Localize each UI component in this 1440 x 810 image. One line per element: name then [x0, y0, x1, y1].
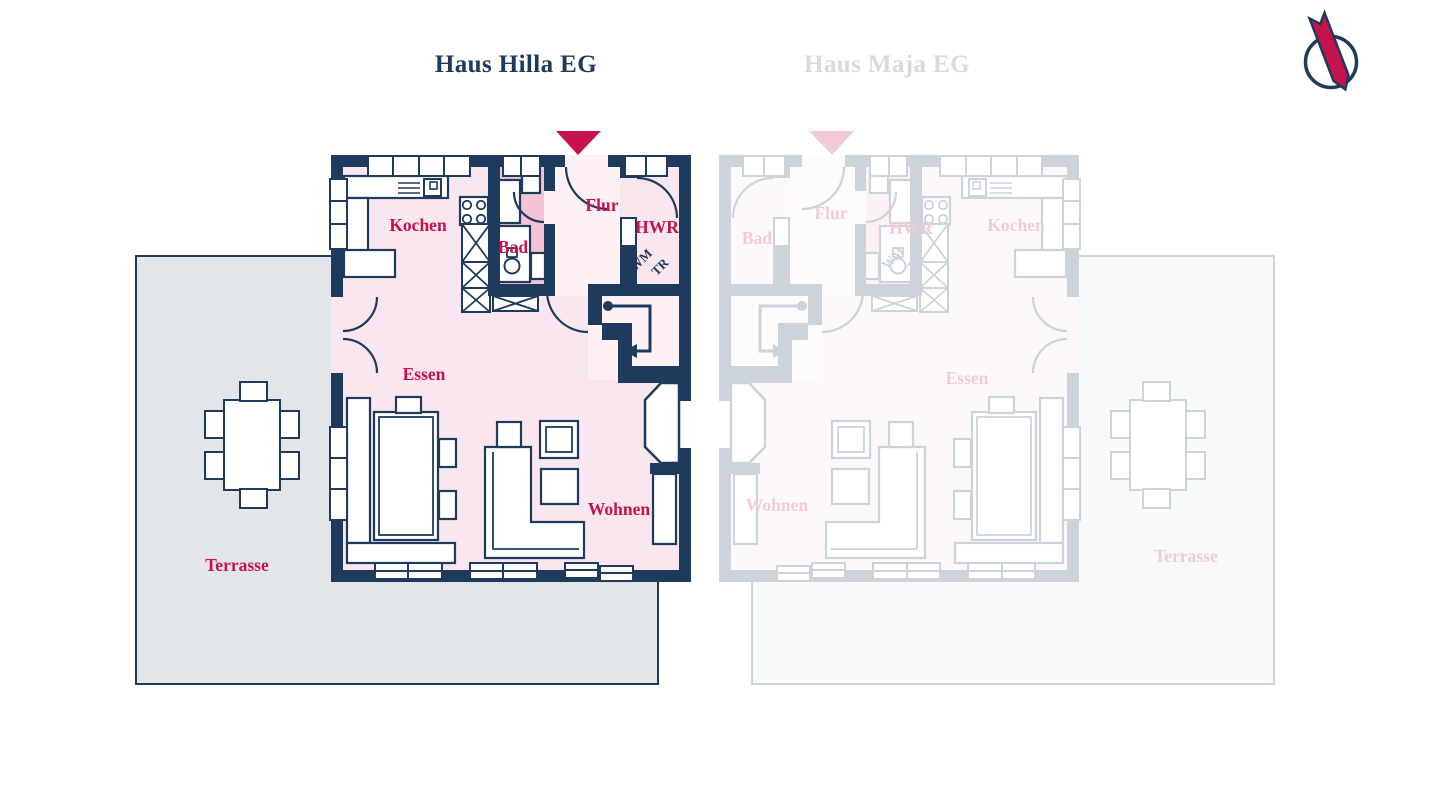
floorplan-viewer: Haus Hilla EG Haus Maja EG KochenBadFlur… [0, 0, 1440, 810]
room-label-essen: Essen [946, 368, 989, 388]
floor-plan-canvas: KochenBadFlurHWREssenWohnenTerrasseWMTR … [0, 0, 1440, 810]
room-label-terrasse: Terrasse [205, 555, 269, 575]
floor-plan-hilla: KochenBadFlurHWREssenWohnenTerrasseWMTR [136, 131, 691, 684]
room-label-terrasse: Terrasse [1154, 546, 1218, 566]
room-label-bad: Bad [498, 237, 528, 257]
room-label-essen: Essen [403, 364, 446, 384]
room-label-wohnen: Wohnen [588, 499, 651, 519]
room-label-bad: Bad [742, 228, 772, 248]
room-label-kochen: Kochen [389, 215, 447, 235]
room-label-kochen: Kochen [987, 215, 1045, 235]
entrance-marker-icon [809, 131, 854, 155]
room-label-wohnen: Wohnen [746, 495, 809, 515]
floor-plan-maja: BadFlurHWRKochenEssenWohnenTerrasseWMTR [719, 131, 1274, 684]
entrance-marker-icon [556, 131, 601, 155]
room-label-flur: Flur [814, 203, 847, 223]
room-label-hwr: HWR [635, 217, 679, 237]
room-label-flur: Flur [585, 195, 618, 215]
circle-ribbon-logo-icon [1306, 13, 1357, 92]
room-label-hwr: HWR [889, 218, 933, 238]
